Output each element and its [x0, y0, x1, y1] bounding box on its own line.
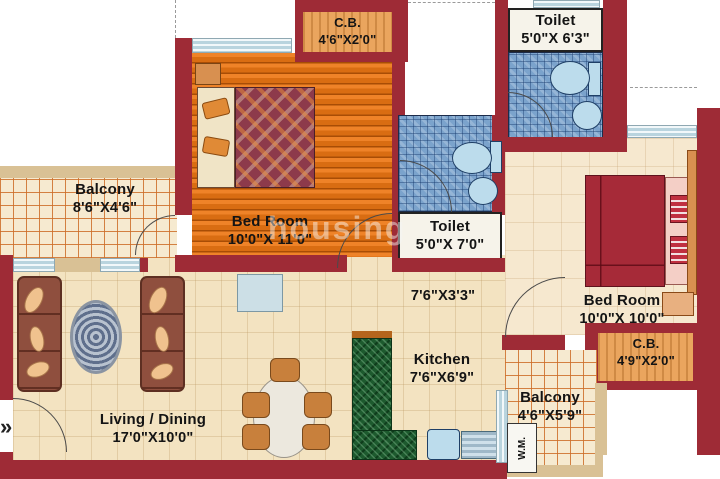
label-balcony-right: Balcony 4'6"X5'9" [504, 388, 596, 426]
room-dims: 4'6"X5'9" [504, 407, 596, 426]
dashed-line [175, 0, 176, 38]
room-dims: 4'6"X2'0" [300, 32, 395, 49]
dining-chair [242, 392, 270, 418]
label-cb-top: C.B. 4'6"X2'0" [300, 15, 395, 48]
label-cb-right: C.B. 4'9"X2'0" [600, 336, 692, 369]
floor-plan: W.M. » C.B. 4'6"X2'0" Toilet 5'0"X 6'3" … [0, 0, 720, 479]
kitchen-sink [427, 429, 460, 460]
entrance-arrow: » [0, 414, 14, 440]
toilet-mid-commode [452, 142, 492, 174]
dining-chair [242, 424, 270, 450]
bedroom-left-wall-west [175, 38, 192, 215]
room-dims: 5'0"X 6'3" [508, 30, 603, 49]
toilet-top-basin [572, 101, 602, 130]
room-dims: 7'6"X3'3" [398, 287, 488, 306]
label-bedroom-right: Bed Room 10'0"X 10'0" [558, 291, 686, 329]
bed-right-headboard [687, 150, 697, 295]
room-dims: 7'6"X6'9" [398, 369, 486, 388]
toilet-top-commode [550, 61, 590, 95]
toilet-top-window [533, 0, 600, 8]
wall-south-outer [0, 460, 507, 479]
exterior-white [603, 455, 720, 479]
label-kitchen: Kitchen 7'6"X6'9" [398, 350, 486, 388]
toilet-mid-basin [468, 177, 498, 205]
room-dims: 8'6"X4'6" [40, 199, 170, 218]
room-name: Balcony [40, 180, 170, 199]
room-dims: 17'0"X10'0" [78, 429, 228, 448]
wall-west-corner [0, 452, 13, 479]
kitchen-counter-edge [352, 331, 392, 338]
watermark: housing [268, 210, 488, 250]
dining-chair [270, 358, 300, 382]
bedroom-right-window [627, 125, 697, 138]
center-table [70, 300, 122, 374]
room-name: C.B. [600, 336, 692, 353]
toilet-top-wall-east [603, 0, 627, 143]
pillow [670, 195, 688, 223]
bedroom-left-wall-south [175, 255, 347, 272]
tv-unit [237, 274, 283, 312]
bed-right-pillow-panel [665, 177, 689, 285]
label-living: Living / Dining 17'0"X10'0" [78, 410, 228, 448]
wall-east-outer [697, 108, 720, 455]
balcony-left-wall-piece [55, 258, 100, 272]
room-dims: 10'0"X 10'0" [558, 310, 686, 329]
wall-west-outer [0, 255, 13, 400]
balcony-left-parapet [0, 166, 177, 178]
dashed-line [630, 87, 697, 88]
room-name: C.B. [300, 15, 395, 32]
washing-machine-label: W.M. [517, 437, 528, 460]
bed-left-quilt [235, 87, 315, 188]
label-toilet-top: Toilet 5'0"X 6'3" [508, 11, 603, 49]
label-balcony-left: Balcony 8'6"X4'6" [40, 180, 170, 218]
room-name: Toilet [508, 11, 603, 30]
kitchen-counter-bottom [352, 430, 417, 460]
dining-chair [302, 424, 330, 450]
toilet-mid-wall-south [392, 258, 505, 272]
bedroom-left-window [192, 38, 292, 53]
balcony-right-wall-north [502, 335, 565, 350]
bed-right-quilt [585, 175, 665, 287]
dining-chair [304, 392, 332, 418]
toilet-top-wall-south [495, 137, 627, 152]
kitchen-drainboard [461, 431, 497, 459]
wall-segment [140, 258, 148, 272]
bedside-table [195, 63, 221, 85]
dashed-line [408, 2, 495, 3]
room-name: Kitchen [398, 350, 486, 369]
balcony-left-window-1 [13, 258, 55, 272]
label-passage: 7'6"X3'3" [398, 287, 488, 306]
room-name: Bed Room [558, 291, 686, 310]
pillow [670, 236, 688, 264]
room-name: Living / Dining [78, 410, 228, 429]
room-dims: 4'9"X2'0" [600, 353, 692, 370]
washing-machine: W.M. [507, 423, 537, 473]
room-name: Balcony [504, 388, 596, 407]
balcony-left-window-2 [100, 258, 140, 272]
